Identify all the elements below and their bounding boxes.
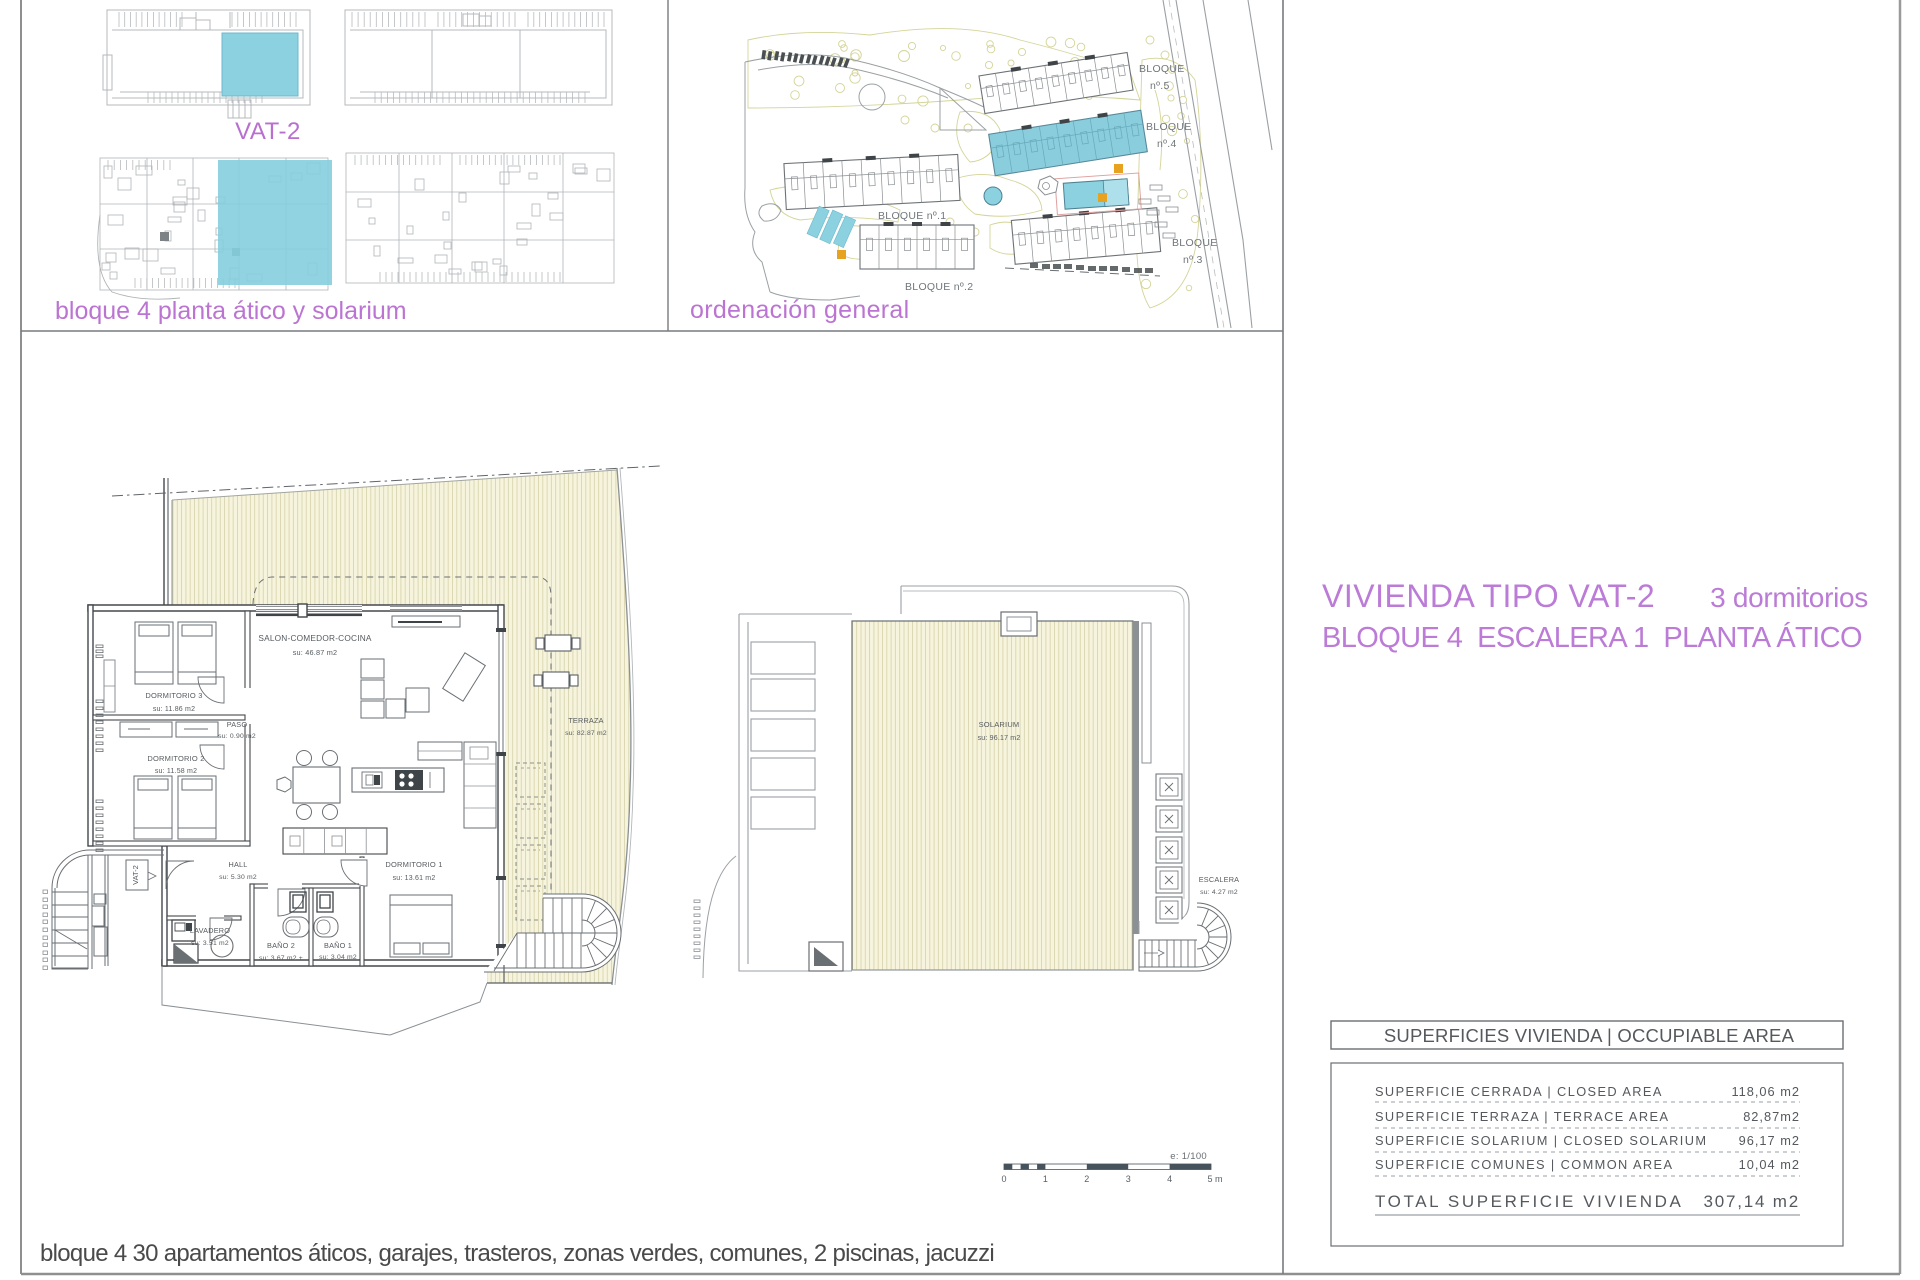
svg-text:nº.5: nº.5 (1150, 80, 1170, 92)
svg-text:BLOQUE: BLOQUE (1139, 63, 1185, 75)
svg-text:BLOQUE nº.1: BLOQUE nº.1 (878, 210, 946, 222)
svg-text:su: 4.27 m2: su: 4.27 m2 (1200, 889, 1238, 896)
svg-text:10,04 m2: 10,04 m2 (1739, 1157, 1800, 1172)
svg-text:SUPERFICIE CERRADA | CLOSED: SUPERFICIE CERRADA | CLOSED AREA (1375, 1084, 1663, 1099)
svg-text:SUPERFICIES VIVIENDA | OCCUPIA: SUPERFICIES VIVIENDA | OCCUPIABLE AREA (1384, 1025, 1795, 1046)
svg-text:nº.4: nº.4 (1157, 138, 1177, 150)
svg-text:SALON-COMEDOR-COCINA: SALON-COMEDOR-COCINA (258, 633, 372, 643)
svg-text:su: 96.17 m2: su: 96.17 m2 (978, 735, 1021, 742)
svg-text:PASO: PASO (227, 720, 248, 729)
svg-text:su: 46.87 m2: su: 46.87 m2 (293, 648, 338, 657)
svg-text:su: 11.58 m2: su: 11.58 m2 (155, 768, 197, 775)
svg-text:su: 3.51 m2: su: 3.51 m2 (191, 940, 229, 947)
svg-text:ESCALERA: ESCALERA (1199, 875, 1240, 884)
svg-text:su: 3.67 m2 +: su: 3.67 m2 + (259, 955, 303, 962)
svg-text:BLOQUE nº.2: BLOQUE nº.2 (905, 281, 973, 293)
svg-text:nº.3: nº.3 (1183, 254, 1203, 266)
svg-text:su: 0.90 m2: su: 0.90 m2 (218, 733, 256, 740)
svg-text:HALL: HALL (228, 860, 247, 869)
svg-text:5 m: 5 m (1207, 1174, 1222, 1184)
svg-text:307,14 m2: 307,14 m2 (1703, 1192, 1800, 1211)
svg-text:su: 13.61 m2: su: 13.61 m2 (393, 875, 436, 882)
svg-text:DORMITORIO 2: DORMITORIO 2 (147, 754, 204, 763)
svg-text:su: 3.04 m2: su: 3.04 m2 (319, 954, 357, 961)
svg-text:TOTAL SUPERFICIE VIVIENDA: TOTAL SUPERFICIE VIVIENDA (1375, 1192, 1683, 1211)
svg-text:ordenación general: ordenación general (690, 296, 909, 324)
svg-text:SUPERFICIE COMUNES | COMMON A: SUPERFICIE COMUNES | COMMON AREA (1375, 1157, 1673, 1172)
svg-text:SUPERFICIE SOLARIUM | CLOSED: SUPERFICIE SOLARIUM | CLOSED SOLARIUM (1375, 1133, 1707, 1148)
svg-text:su: 11.86 m2: su: 11.86 m2 (153, 706, 195, 713)
svg-text:96,17 m2: 96,17 m2 (1739, 1133, 1800, 1148)
svg-text:BLOQUE 4 ESCALERA 1 PLANTA Á: BLOQUE 4 ESCALERA 1 PLANTA ÁTICO (1322, 621, 1862, 654)
svg-text:SOLARIUM: SOLARIUM (979, 720, 1020, 729)
svg-text:3 dormitorios: 3 dormitorios (1710, 582, 1868, 613)
svg-text:e: 1/100: e: 1/100 (1170, 1151, 1207, 1162)
svg-text:2: 2 (1084, 1174, 1089, 1184)
svg-text:VAT-2: VAT-2 (131, 865, 140, 885)
svg-text:1: 1 (1043, 1174, 1048, 1184)
svg-text:3: 3 (1126, 1174, 1131, 1184)
svg-text:VIVIENDA TIPO VAT-2: VIVIENDA TIPO VAT-2 (1322, 578, 1655, 614)
svg-text:BAÑO 1: BAÑO 1 (324, 941, 352, 950)
svg-text:DORMITORIO 1: DORMITORIO 1 (385, 860, 442, 869)
svg-text:SUPERFICIE TERRAZA | TERRAC: SUPERFICIE TERRAZA | TERRACE AREA (1375, 1109, 1669, 1124)
svg-text:VAT-2: VAT-2 (235, 118, 301, 145)
svg-text:BLOQUE: BLOQUE (1172, 237, 1218, 249)
svg-text:DORMITORIO 3: DORMITORIO 3 (145, 691, 202, 700)
svg-text:4: 4 (1167, 1174, 1172, 1184)
svg-text:bloque 4 planta ático y solari: bloque 4 planta ático y solarium (55, 297, 407, 325)
svg-text:82,87m2: 82,87m2 (1743, 1109, 1800, 1124)
svg-text:BAÑO 2: BAÑO 2 (267, 941, 295, 950)
svg-text:bloque 4 30 apartamentos ático: bloque 4 30 apartamentos áticos, garajes… (40, 1240, 994, 1267)
svg-text:TERRAZA: TERRAZA (568, 716, 603, 725)
svg-text:LAVADERO: LAVADERO (190, 926, 230, 935)
svg-text:0: 0 (1001, 1174, 1006, 1184)
svg-text:su: 82.87 m2: su: 82.87 m2 (565, 730, 607, 737)
svg-text:118,06 m2: 118,06 m2 (1731, 1084, 1800, 1099)
svg-text:su: 5.30 m2: su: 5.30 m2 (219, 874, 257, 881)
svg-text:BLOQUE: BLOQUE (1146, 121, 1192, 133)
